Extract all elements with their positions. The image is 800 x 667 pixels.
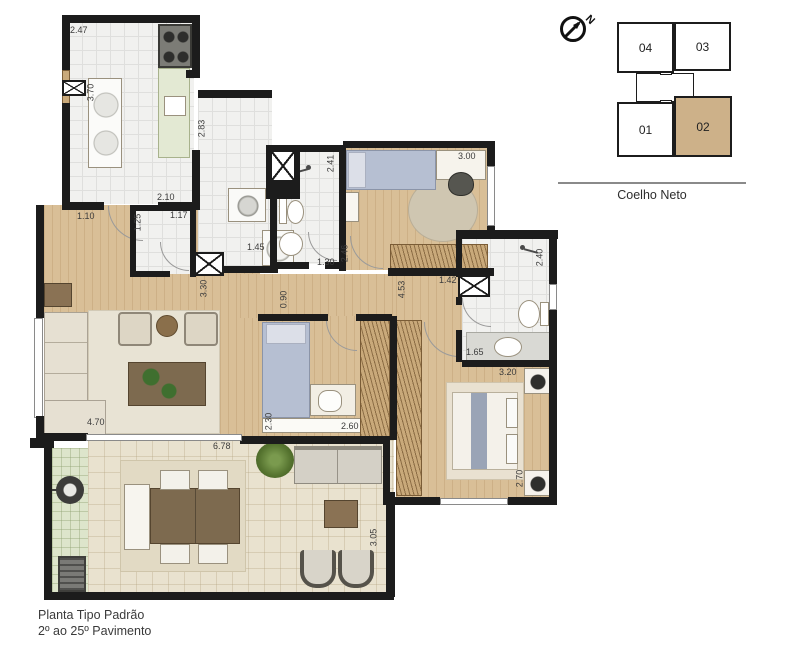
wall [390, 316, 397, 440]
wall [62, 15, 70, 73]
dimension-label: 1.45 [247, 243, 265, 252]
wall [487, 141, 495, 166]
wall [186, 70, 200, 78]
wall [270, 195, 277, 269]
plan-title-line2: 2º ao 25º Pavimento [38, 623, 151, 639]
duct-shaft [194, 252, 224, 276]
wall [386, 492, 395, 597]
corridor-floor [240, 274, 396, 318]
unit-03: 03 [674, 22, 731, 71]
dimension-label: 1.25 [133, 214, 142, 232]
bed-pillow [506, 434, 518, 464]
barbecue-grill [58, 556, 86, 592]
unit-03-label: 03 [696, 40, 709, 54]
wall [192, 15, 200, 77]
wall [62, 202, 104, 210]
vanity-sink [494, 337, 522, 357]
toilet-master [518, 300, 540, 328]
dimension-label: 1.17 [170, 211, 188, 220]
dimension-label: 2.70 [515, 470, 524, 488]
wardrobe-bedroom1 [390, 244, 488, 270]
dimension-label: 2.41 [326, 155, 335, 173]
unit-01: 01 [617, 102, 674, 157]
dimension-label: 4.53 [397, 281, 406, 299]
bedroom1-window [487, 166, 495, 226]
coffee-table [128, 362, 206, 406]
wall [277, 262, 309, 269]
planter-sink [56, 476, 84, 504]
dining-chair [198, 544, 228, 564]
dining-chair [198, 470, 228, 490]
washing-machine [228, 188, 266, 222]
street-label: Coelho Neto [558, 188, 746, 202]
wall [456, 230, 558, 239]
unit-04-label: 04 [639, 41, 652, 55]
balcony-side-table [324, 500, 358, 528]
plan-title-line1: Planta Tipo Padrão [38, 607, 144, 623]
north-arrow-icon [563, 19, 583, 39]
armchair [118, 312, 152, 346]
desk-chair-2 [318, 390, 342, 412]
living-room-window [34, 318, 43, 418]
sideboard [124, 484, 150, 550]
divider-line [558, 182, 746, 184]
nightstand-master-bottom [524, 470, 550, 496]
dimension-label: 2.60 [341, 422, 359, 431]
round-side-table [156, 315, 178, 337]
master-bedroom-window [440, 498, 508, 505]
wall [36, 205, 44, 285]
toilet-tank [279, 198, 287, 224]
balcony-sofa [294, 446, 382, 484]
north-compass [560, 16, 586, 42]
dimension-label: 4.70 [87, 418, 105, 427]
wall [192, 150, 200, 210]
armchair [184, 312, 218, 346]
wall [36, 416, 44, 438]
dimension-label: 3.00 [458, 152, 476, 161]
toilet [287, 200, 304, 224]
wall [549, 239, 557, 284]
wall [388, 497, 440, 505]
bed1-pillow [348, 152, 366, 188]
dimension-label: 1.65 [466, 348, 484, 357]
unit-02-label: 02 [696, 120, 709, 134]
wall [130, 271, 170, 277]
duct-shaft [458, 275, 490, 297]
wall [240, 436, 390, 444]
dimension-label: 1.30 [317, 258, 335, 267]
wall [456, 297, 462, 305]
kitchen-sink [164, 96, 186, 116]
floor-plan-canvas: 2.473.702.832.101.101.251.171.452.413.00… [0, 0, 800, 667]
bathroom-sink [279, 232, 303, 256]
plant [256, 442, 294, 478]
wall [462, 360, 552, 367]
bed2-pillow [266, 324, 306, 344]
dimension-label: 2.30 [264, 413, 273, 431]
dining-chair [160, 470, 190, 490]
master-bathroom-window [549, 284, 557, 310]
wall [343, 141, 493, 148]
wall [456, 330, 462, 362]
dimension-label: 1.42 [439, 276, 457, 285]
shower-head-icon [520, 245, 525, 250]
wall [44, 592, 394, 600]
unit-04: 04 [617, 22, 674, 73]
dimension-label: 0.90 [279, 291, 288, 309]
tv-rack [44, 283, 72, 307]
dimension-label: 1.10 [77, 212, 95, 221]
unit-01-label: 01 [639, 123, 652, 137]
wardrobe-master [396, 320, 422, 496]
dimension-label: 2.10 [157, 193, 175, 202]
unit-02-highlighted: 02 [674, 96, 732, 157]
wall [356, 314, 392, 321]
dimension-label: 3.70 [86, 84, 95, 102]
wall [549, 364, 557, 505]
duct-shaft [270, 150, 296, 182]
wall [44, 444, 52, 597]
dimension-label: 2.46 [340, 245, 349, 263]
dimension-label: 2.83 [197, 120, 206, 138]
dimension-label: 6.78 [213, 442, 231, 451]
bed-pillow [506, 398, 518, 428]
dimension-label: 3.20 [499, 368, 517, 377]
wardrobe-bedroom2 [360, 320, 390, 438]
dining-table [150, 488, 240, 544]
wall [62, 103, 70, 210]
wall [36, 280, 44, 318]
wall [258, 314, 328, 321]
dimension-label: 2.40 [535, 249, 544, 267]
nightstand-master-top [524, 368, 550, 394]
wall [222, 266, 278, 273]
dimension-label: 2.47 [70, 26, 88, 35]
wall [62, 15, 200, 23]
wall [456, 239, 462, 277]
wall [508, 497, 555, 505]
lounge-chair [300, 550, 336, 588]
vent [62, 80, 86, 96]
stove [158, 24, 192, 68]
lounge-chair [338, 550, 374, 588]
wall [30, 438, 54, 448]
dimension-label: 3.30 [199, 280, 208, 298]
desk-chair-1 [448, 172, 474, 196]
balcony-sliding-door [86, 434, 242, 441]
toilet-master-tank [540, 302, 549, 326]
dining-chair [160, 544, 190, 564]
wall [198, 90, 272, 98]
shower-head-icon [306, 165, 311, 170]
dimension-label: 3.05 [369, 529, 378, 547]
